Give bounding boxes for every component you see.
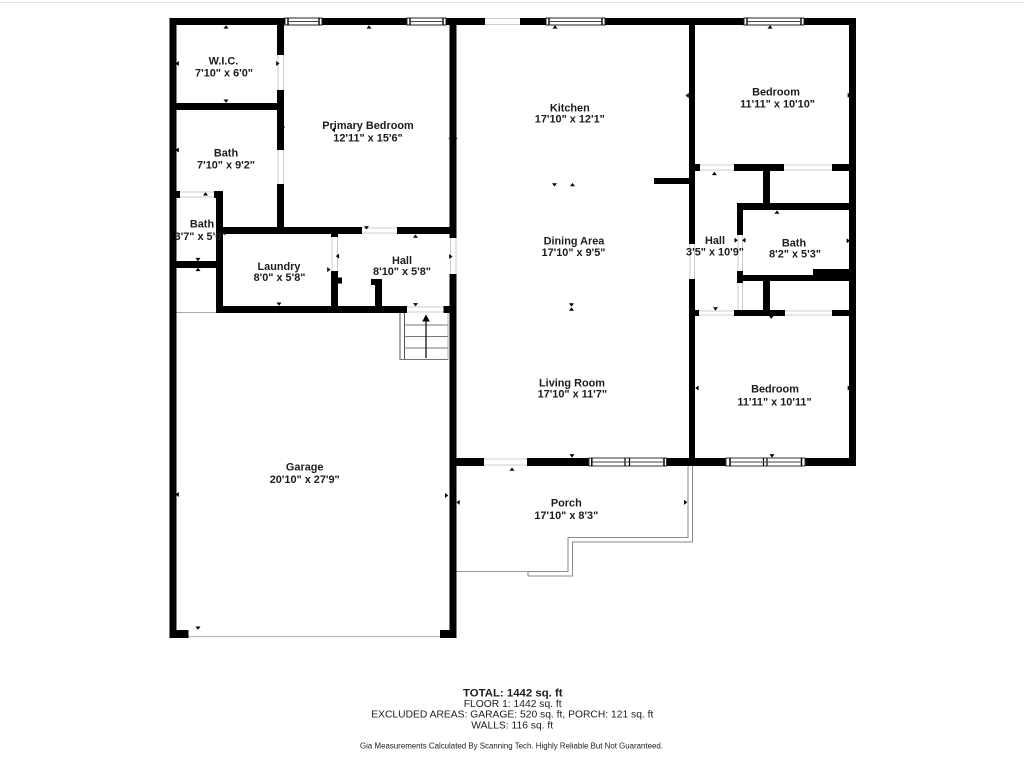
svg-text:3'5" x 10'9": 3'5" x 10'9" — [686, 246, 744, 258]
svg-text:7'10" x 6'0": 7'10" x 6'0" — [195, 68, 253, 80]
svg-text:Bedroom: Bedroom — [751, 383, 799, 395]
svg-text:3'7" x 5'0": 3'7" x 5'0" — [175, 231, 227, 243]
svg-text:Dining Area: Dining Area — [544, 235, 606, 247]
svg-text:8'0" x 5'8": 8'0" x 5'8" — [254, 272, 306, 284]
svg-text:17'10" x 8'3": 17'10" x 8'3" — [534, 510, 598, 522]
svg-text:TOTAL: 1442 sq. ft: TOTAL: 1442 sq. ft — [463, 688, 563, 700]
svg-text:7'10" x 9'2": 7'10" x 9'2" — [197, 160, 255, 172]
svg-text:Gia Measurements Calculated By: Gia Measurements Calculated By Scanning … — [360, 741, 663, 750]
svg-text:Garage: Garage — [286, 462, 324, 474]
svg-text:W.I.C.: W.I.C. — [209, 55, 239, 67]
svg-text:11'11" x 10'11": 11'11" x 10'11" — [737, 396, 811, 408]
svg-text:WALLS: 116 sq. ft: WALLS: 116 sq. ft — [471, 720, 553, 731]
svg-text:Bedroom: Bedroom — [752, 87, 800, 99]
svg-text:FLOOR 1: 1442 sq. ft: FLOOR 1: 1442 sq. ft — [464, 699, 562, 710]
svg-text:8'10" x 5'8": 8'10" x 5'8" — [373, 266, 431, 278]
svg-text:Kitchen: Kitchen — [550, 102, 590, 114]
svg-text:17'10" x 9'5": 17'10" x 9'5" — [542, 247, 606, 259]
svg-text:8'2" x 5'3": 8'2" x 5'3" — [769, 248, 821, 260]
svg-text:Bath: Bath — [190, 219, 214, 231]
svg-text:17'10" x 11'7": 17'10" x 11'7" — [538, 388, 607, 400]
svg-text:11'11" x 10'10": 11'11" x 10'10" — [740, 98, 815, 110]
svg-text:12'11" x 15'6": 12'11" x 15'6" — [333, 132, 402, 144]
svg-text:EXCLUDED AREAS: GARAGE: 520 sq: EXCLUDED AREAS: GARAGE: 520 sq. ft, PORC… — [371, 710, 653, 721]
svg-text:Primary Bedroom: Primary Bedroom — [322, 120, 414, 132]
svg-text:Porch: Porch — [551, 498, 582, 510]
svg-text:20'10" x 27'9": 20'10" x 27'9" — [270, 474, 340, 486]
svg-text:17'10" x 12'1": 17'10" x 12'1" — [535, 114, 605, 126]
svg-text:Hall: Hall — [705, 235, 725, 247]
svg-text:Bath: Bath — [214, 148, 238, 160]
svg-text:Laundry: Laundry — [258, 261, 301, 273]
